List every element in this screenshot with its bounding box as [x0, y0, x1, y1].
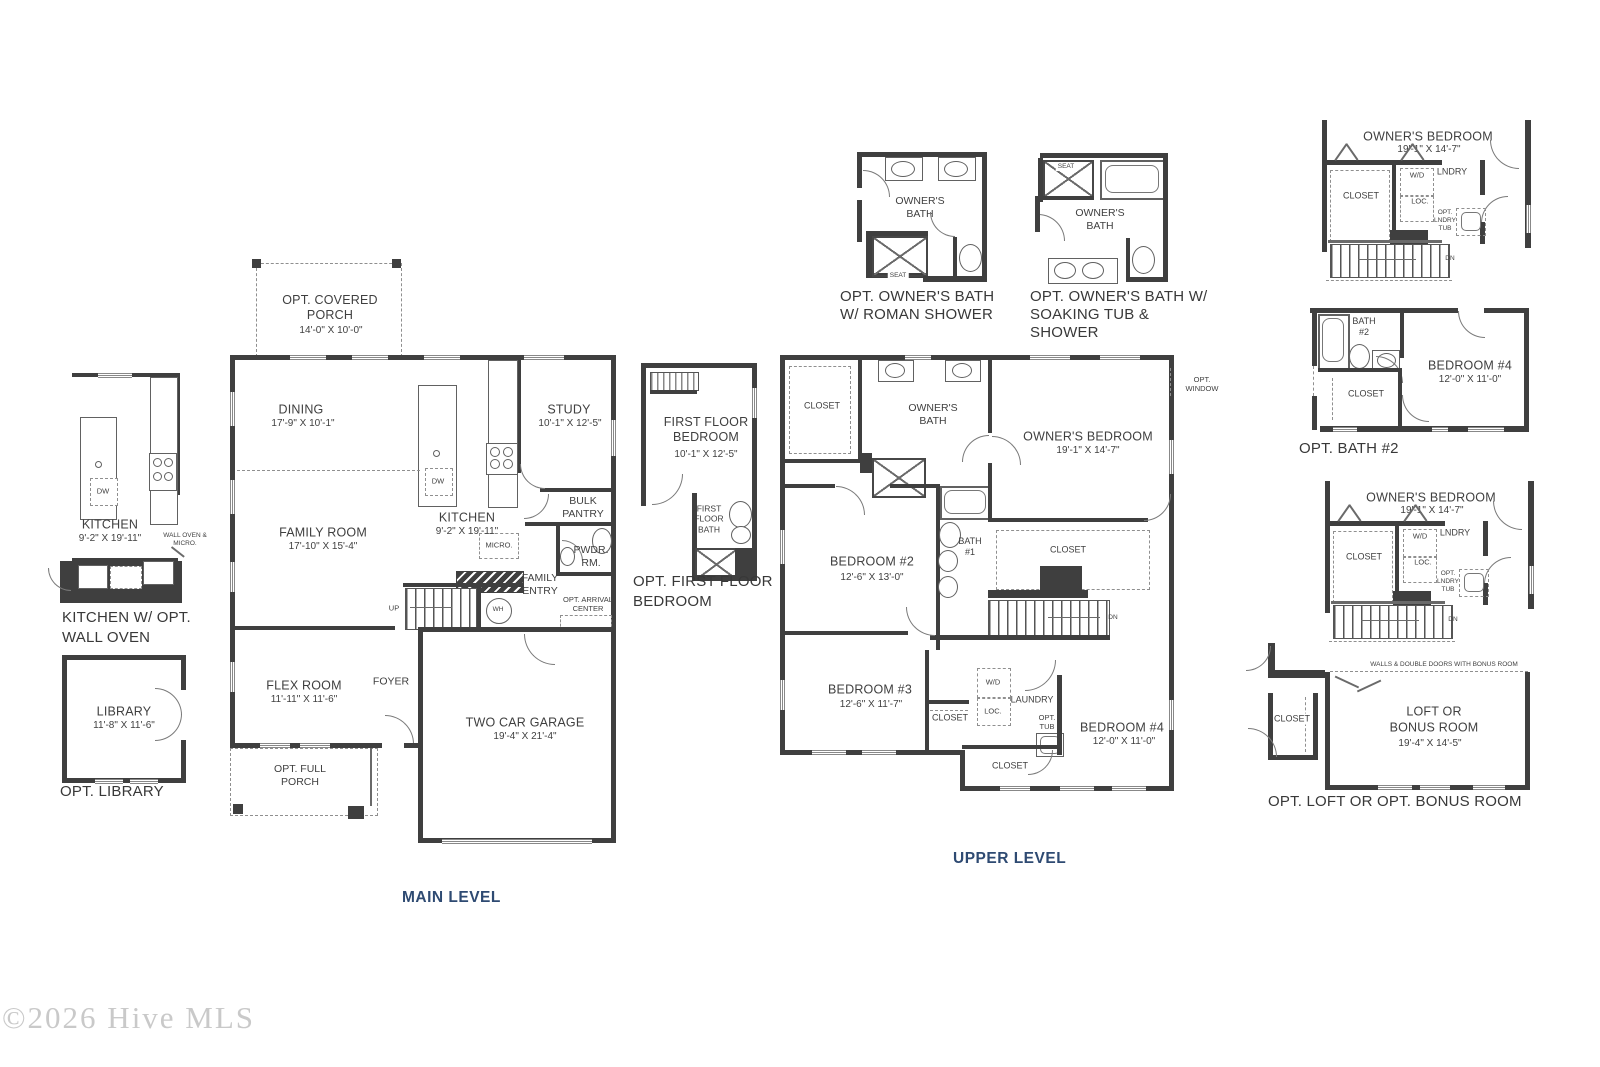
window [1526, 205, 1531, 233]
wall [1400, 308, 1404, 358]
toilet [1132, 246, 1155, 274]
wall [1328, 240, 1442, 243]
bath-soaking-caption: SOAKING TUB & [1030, 305, 1149, 325]
room-label: FIRST FLOOR BEDROOM [663, 415, 749, 446]
door-arc [1490, 140, 1519, 169]
wall [1322, 120, 1327, 162]
loft-option-caption: OPT. LOFT OR OPT. BONUS ROOM [1268, 792, 1522, 812]
wall [857, 152, 862, 188]
wall [1038, 196, 1094, 200]
seat-label: SEAT [1056, 163, 1077, 171]
door-arc [155, 688, 182, 715]
room-label: PWDR. RM. [570, 544, 612, 570]
room-label: LAUNDRY [1011, 695, 1054, 706]
room-dims: 12'-0" X 11'-0" [1439, 374, 1501, 386]
wall [929, 700, 969, 704]
window [862, 750, 896, 755]
room-label: OWNER'S BATH [906, 402, 961, 428]
window [1169, 440, 1174, 474]
wall [1325, 521, 1445, 526]
window [230, 392, 235, 426]
room-dims: 12'-0" X 11'-0" [1093, 736, 1155, 748]
stairs-up [405, 588, 477, 630]
room-label: OPT. FULL PORCH [268, 763, 332, 789]
dashed-wall [1330, 671, 1528, 672]
room-label: BATH #1 [955, 536, 985, 558]
toilet [729, 501, 752, 528]
wall [1040, 153, 1168, 158]
opt-lndry-tub-label: OPT. LNDRY TUB [1431, 209, 1459, 233]
floor-plan-sheet: DW KITCHEN 9'-2" X 19'-11" WALL OVEN & M… [0, 0, 1600, 1067]
loc-label: LOC. [1414, 557, 1432, 566]
room-dims: 17'-10" X 15'-4" [289, 541, 358, 553]
stairs-dashed-edge [1329, 641, 1455, 642]
window [1000, 786, 1030, 791]
upper-level-caption: UPPER LEVEL [953, 850, 1066, 868]
window [752, 388, 757, 418]
sink [1082, 262, 1104, 279]
room-label: LNDRY [1437, 167, 1467, 178]
door-arc [1028, 750, 1053, 775]
closet-rod [650, 372, 699, 391]
wall [1057, 675, 1062, 755]
door-arc [1144, 494, 1171, 521]
wall [988, 590, 1088, 598]
wall [181, 740, 186, 783]
wall [1525, 672, 1530, 790]
porch-post [252, 259, 261, 268]
main-level-caption: MAIN LEVEL [402, 889, 501, 907]
garage-door-arc [524, 634, 555, 665]
door-arc [48, 568, 71, 591]
burner [503, 459, 513, 469]
room-label: BEDROOM #3 [828, 682, 912, 697]
wall [1163, 153, 1168, 279]
wall [962, 745, 1060, 749]
stairs-arrow [1358, 259, 1416, 260]
wall [650, 390, 697, 394]
wall [418, 627, 616, 632]
room-dims: 10'-1" X 12'-5" [538, 418, 601, 430]
room-label: BATH #2 [1349, 316, 1379, 338]
bath-roman-caption: OPT. OWNER'S BATH [840, 287, 994, 307]
bifold-door-mark [1348, 504, 1361, 521]
porch-post [233, 804, 243, 814]
wall [1318, 368, 1402, 372]
burner [490, 447, 500, 457]
wall [988, 463, 992, 521]
closet-label: CLOSET [931, 713, 969, 724]
washer-dryer-label: W/D [1413, 531, 1428, 540]
closet-label: CLOSET [991, 761, 1029, 772]
wall [181, 655, 186, 690]
wall [982, 152, 987, 282]
wall [1395, 526, 1399, 601]
sink [731, 526, 751, 544]
room-dims: 19'-4" X 14'-5" [1398, 738, 1461, 750]
burner [490, 459, 500, 469]
bifold-door-mark [1334, 143, 1347, 160]
stairs-arrow [410, 607, 452, 608]
tub-basin [1461, 212, 1481, 231]
burner [164, 458, 173, 467]
wall [477, 587, 481, 629]
closet-shelving [1333, 531, 1393, 603]
room-dims: 14'-0" X 10'-0" [299, 325, 362, 337]
door-arc [836, 486, 865, 515]
dishwasher-label: DW [97, 486, 110, 495]
window [230, 662, 235, 692]
appliance [110, 566, 142, 589]
room-dims: 19'-4" X 21'-4" [493, 731, 556, 743]
window [1529, 566, 1534, 594]
sink [1054, 262, 1076, 279]
window [780, 680, 785, 710]
room-label: DINING [279, 402, 324, 417]
stairs-dashed-edge [1326, 280, 1452, 281]
room-dims: 19'-1" X 14'-7" [1056, 445, 1119, 457]
window [1333, 427, 1357, 432]
room-label: KITCHEN [439, 510, 495, 525]
burner [503, 447, 513, 457]
door-arc [1402, 395, 1429, 422]
loc-label: LOC. [984, 706, 1002, 715]
room-label: LNDRY [1440, 528, 1470, 539]
closet-rod-dashed [1305, 697, 1306, 752]
wall [890, 484, 938, 488]
room-label: BEDROOM #2 [830, 554, 914, 569]
owners-suite-option-top: OWNER'S BEDROOM 19'-1" X 14'-7" CLOSET W… [1293, 120, 1538, 292]
washer-dryer-label: W/D [986, 677, 1001, 686]
room-label: BEDROOM #4 [1080, 720, 1164, 735]
wall [556, 572, 616, 576]
closet-shelving [1330, 170, 1390, 242]
wall [62, 655, 67, 783]
window [230, 480, 235, 514]
tub-basin [1464, 573, 1484, 592]
wall [1312, 308, 1317, 366]
tub-basin [1105, 165, 1159, 193]
wall [1325, 672, 1330, 790]
wall [988, 518, 1148, 522]
closet-label: CLOSET [1048, 545, 1088, 556]
window [1420, 785, 1450, 790]
closet-rod-dashed [1332, 378, 1333, 420]
wall [556, 522, 560, 576]
kitchen-counter [488, 360, 518, 508]
loc-label: LOC. [1411, 196, 1429, 205]
door-arc [1493, 501, 1522, 530]
closet-label: CLOSET [802, 401, 842, 412]
wall [1312, 396, 1317, 430]
sink-knob [433, 450, 440, 457]
kitchen-counter [150, 377, 178, 525]
arrival-center-label: OPT. ARRIVAL CENTER [557, 595, 619, 613]
room-label: FLEX ROOM [266, 678, 341, 693]
room-label: BONUS ROOM [1390, 720, 1479, 735]
window [1100, 355, 1140, 360]
wall [540, 488, 616, 492]
library-option-caption: OPT. LIBRARY [60, 782, 164, 802]
window [98, 373, 132, 378]
door-arc [1458, 311, 1485, 338]
window [1030, 355, 1070, 360]
room-label: FAMILY ROOM [279, 525, 367, 540]
stairs-label: DN [1445, 255, 1454, 263]
bonus-room-note: WALLS & DOUBLE DOORS WITH BONUS ROOM [1370, 661, 1517, 669]
door-arc [524, 494, 549, 519]
wall [923, 276, 987, 282]
kitchen-option-caption: KITCHEN W/ OPT. WALL OVEN [62, 608, 234, 647]
window [1112, 786, 1146, 791]
door-arc [962, 435, 989, 462]
room-dims: 9'-2" X 19'-11" [79, 533, 141, 545]
room-divider-dashed [237, 470, 420, 471]
stairs-arrow [1361, 620, 1419, 621]
opt-lndry-tub-label: OPT. LNDRY TUB [1434, 570, 1462, 594]
bifold-door-mark [1345, 143, 1358, 160]
wall [780, 484, 835, 488]
door-arc [155, 714, 182, 741]
wall [1484, 308, 1528, 313]
porch-step [348, 806, 364, 819]
front-door-arc [385, 715, 414, 744]
door-arc [652, 474, 683, 505]
room-dims: 12'-6" X 13'-0" [840, 572, 903, 584]
wall [988, 355, 992, 433]
room-dims: 11'-11" X 11'-6" [271, 694, 338, 706]
porch-line [370, 748, 372, 806]
toilet [959, 244, 982, 272]
window [1432, 427, 1448, 432]
room-label: TWO CAR GARAGE [466, 715, 585, 730]
wall [1126, 238, 1130, 282]
bath-roman-caption: W/ ROMAN SHOWER [840, 305, 993, 325]
stairs-down [1330, 244, 1450, 278]
door-arc [520, 464, 545, 489]
tub-basin [944, 490, 986, 514]
window [290, 355, 326, 360]
wall [525, 522, 616, 526]
wall [1126, 277, 1168, 282]
wall [857, 200, 862, 242]
wall [930, 635, 1110, 640]
wall [1310, 308, 1458, 313]
wall [1398, 372, 1402, 428]
room-label: KITCHEN [82, 517, 138, 532]
ff-bedroom-caption: OPT. FIRST FLOOR BEDROOM [633, 572, 773, 611]
room-label: OWNER'S BEDROOM [1023, 429, 1153, 444]
bath2-option-caption: OPT. BATH #2 [1299, 439, 1399, 459]
window [424, 355, 460, 360]
stairs-label: UP [389, 603, 399, 612]
sink [885, 363, 905, 378]
room-dims: 17'-9" X 10'-1" [271, 418, 334, 430]
opt-window-dashed [1170, 368, 1171, 396]
refrigerator [78, 565, 108, 589]
wall [1325, 481, 1330, 523]
room-label: STUDY [547, 402, 590, 417]
wall [1325, 521, 1330, 613]
closet-label: CLOSET [1273, 714, 1311, 725]
window [1378, 785, 1412, 790]
stairs-arrow [1048, 617, 1100, 618]
sink [944, 161, 968, 177]
shower [872, 458, 926, 498]
room-dims: 12'-6" X 11'-7" [840, 699, 902, 711]
wall-oven [143, 561, 174, 585]
wall [641, 363, 646, 506]
room-dims: 10'-1" X 12'-5" [674, 449, 737, 461]
closet-label: CLOSET [1346, 389, 1386, 400]
break-line [1357, 680, 1381, 692]
chase [1040, 566, 1082, 590]
room-label: OWNER'S BEDROOM [1363, 129, 1493, 144]
porch-post [392, 259, 401, 268]
wall [418, 627, 423, 843]
wall [1268, 670, 1325, 678]
window [812, 750, 846, 755]
window [524, 355, 564, 360]
room-label: BULK PANTRY [555, 495, 611, 521]
wall [1313, 693, 1318, 760]
window [611, 420, 616, 456]
wall [780, 631, 908, 635]
sink [938, 576, 958, 598]
wall [1331, 601, 1445, 604]
break-line [1335, 676, 1359, 688]
roman-shower [872, 236, 928, 277]
owners-suite-option-bottom: OWNER'S BEDROOM 19'-1" X 14'-7" CLOSET W… [1296, 481, 1541, 653]
wall [780, 459, 862, 463]
stairs-down [988, 600, 1110, 639]
burner [153, 458, 162, 467]
opt-window-label: OPT. WINDOW [1182, 375, 1222, 393]
seat-label: SEAT [888, 272, 909, 280]
bath-soaking-caption: OPT. OWNER'S BATH W/ [1030, 287, 1207, 307]
sink-knob [95, 461, 102, 468]
sink [952, 363, 972, 378]
sink [891, 161, 915, 177]
window [780, 530, 785, 564]
mls-watermark: ©2026 Hive MLS [2, 1000, 255, 1036]
stairs-label: DN [1448, 616, 1457, 624]
dashed-wall [1313, 366, 1314, 396]
wall [860, 453, 872, 473]
dishwasher-label: DW [432, 476, 445, 485]
window [1060, 786, 1094, 791]
room-label: OWNER'S BATH [1073, 207, 1128, 233]
water-heater-label: WH [493, 606, 504, 614]
door-arc [930, 212, 955, 237]
stairs-down [1333, 605, 1453, 639]
room-label: FOYER [373, 676, 409, 689]
wall [1480, 160, 1485, 195]
wall [1322, 160, 1327, 252]
stairs-label: DN [1108, 614, 1117, 622]
room-dims: 9'-2" X 19'-11" [436, 526, 498, 538]
bath-soaking-caption: SHOWER [1030, 323, 1099, 343]
window [1473, 785, 1505, 790]
wall [1392, 165, 1396, 240]
room-label: LIBRARY [97, 704, 152, 719]
closet-label: CLOSET [1341, 191, 1381, 202]
tub-basin [1322, 318, 1344, 362]
closet-rod-dashed [930, 710, 968, 711]
door-arc [1025, 660, 1056, 691]
wall [960, 750, 965, 791]
room-label: OPT. COVERED PORCH [281, 293, 379, 324]
burner [164, 472, 173, 481]
window [1468, 427, 1504, 432]
door-arc [1038, 214, 1065, 241]
door-arc [906, 607, 935, 636]
wall [1483, 521, 1488, 556]
closet-label: CLOSET [1344, 552, 1384, 563]
wall [1035, 196, 1040, 232]
door-arc [992, 436, 1021, 465]
garage-door [442, 839, 592, 844]
wall [1524, 308, 1529, 432]
wall [477, 583, 523, 587]
wall-oven-note: WALL OVEN & MICRO. [161, 532, 209, 548]
wall [858, 355, 862, 463]
room-label: FIRST FLOOR BATH [692, 503, 726, 534]
microwave-label: MICRO. [485, 540, 512, 549]
wall [1322, 160, 1442, 165]
wall [403, 583, 479, 587]
room-dims: 11'-8" X 11'-6" [93, 720, 155, 732]
window [1169, 700, 1174, 730]
room-label: BEDROOM #4 [1428, 358, 1512, 373]
toilet [1349, 344, 1370, 369]
room-label: LOFT OR [1406, 704, 1461, 719]
washer-dryer-label: W/D [1410, 170, 1425, 179]
burner [153, 472, 162, 481]
wall [641, 363, 757, 368]
wall [62, 655, 186, 660]
window [230, 562, 235, 592]
window [352, 355, 388, 360]
room-label: OWNER'S BEDROOM [1366, 490, 1496, 505]
bifold-door-mark [1337, 504, 1350, 521]
wall [230, 626, 395, 630]
